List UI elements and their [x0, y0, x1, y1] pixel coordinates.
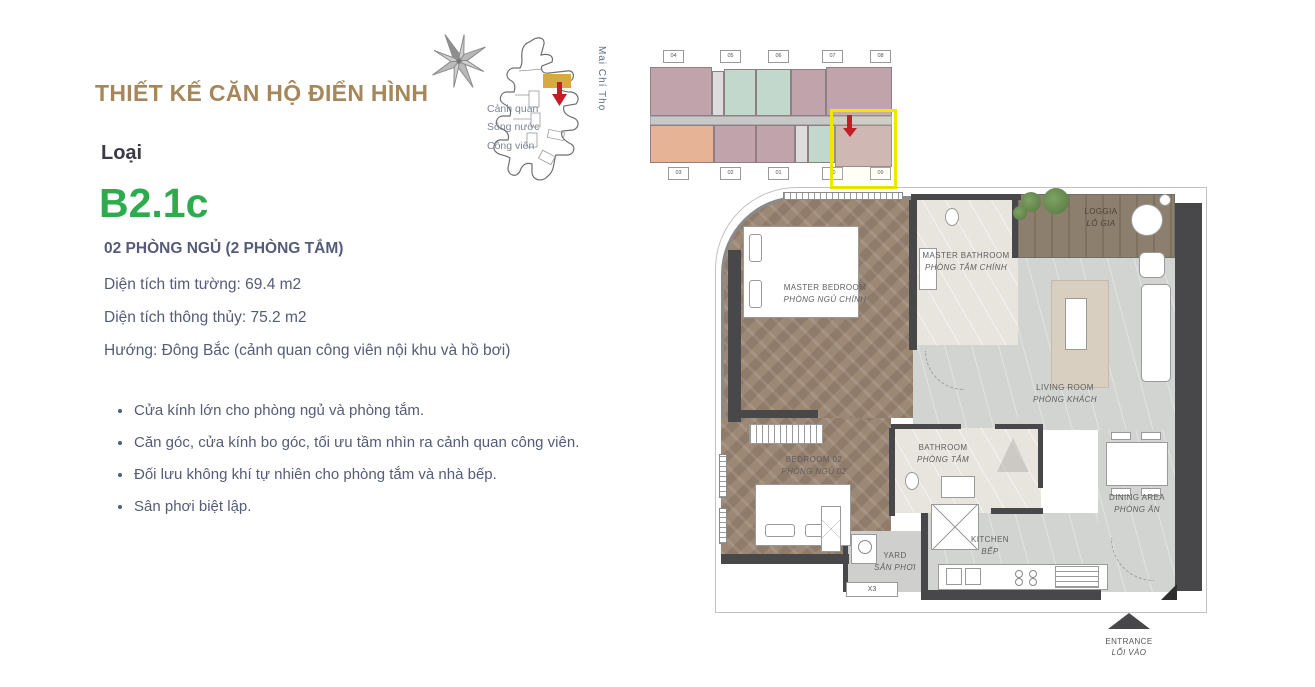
pillow	[765, 524, 795, 537]
bullet-dot	[118, 409, 122, 413]
unit-tag: 03	[668, 167, 689, 180]
stove	[1013, 568, 1043, 586]
selected-unit-arrow	[847, 115, 852, 128]
spec-gross-area: Diện tích tim tường: 69.4 m2	[104, 276, 301, 294]
window	[719, 508, 727, 544]
keyplan-unit	[756, 69, 791, 116]
bullet-dot	[118, 505, 122, 509]
window	[719, 454, 727, 498]
bullet-dot	[118, 441, 122, 445]
sink	[946, 568, 962, 585]
page-title: THIẾT KẾ CĂN HỘ ĐIỂN HÌNH	[95, 80, 428, 107]
plant-icon	[1043, 188, 1069, 214]
dining-table	[1106, 442, 1168, 486]
entrance-arrow	[1108, 613, 1150, 629]
egg-chair	[1131, 204, 1163, 236]
pillow	[749, 234, 762, 262]
sink	[965, 568, 981, 585]
keyplan-unit	[650, 125, 714, 163]
unit-code: B2.1c	[99, 180, 208, 227]
keyplan-unit	[650, 67, 712, 116]
feature-item: Căn góc, cửa kính bo góc, tối ưu tầm nhì…	[118, 434, 598, 451]
pillow	[749, 280, 762, 308]
feature-item: Cửa kính lớn cho phòng ngủ và phòng tắm.	[118, 402, 598, 419]
yard-tag: X3	[846, 582, 898, 597]
keyplan-core	[712, 71, 724, 116]
apartment-floor-plan: MASTER BEDROOM PHÒNG NGỦ CHÍNH MASTER BA…	[713, 186, 1213, 628]
unit-tag: 04	[663, 50, 684, 63]
unit-tag: 02	[720, 167, 741, 180]
feature-list: Cửa kính lớn cho phòng ngủ và phòng tắm.…	[118, 402, 598, 530]
floor-plate-keyplan: 04 05 06 07 08 03 02 01 10 09	[645, 45, 897, 187]
keyplan-unit	[791, 69, 826, 116]
street-label: Mai Chí Thọ	[596, 46, 607, 111]
vanity	[941, 476, 975, 498]
entrance-label: ENTRANCE LỐI VÀO	[1093, 636, 1165, 658]
plant-icon	[1013, 206, 1027, 220]
room-label-dining: DINING AREA PHÒNG ĂN	[1109, 492, 1165, 516]
spec-heading: 02 PHÒNG NGỦ (2 PHÒNG TẮM)	[104, 240, 343, 258]
room-label-loggia: LOGGIA LÔ GIA	[1084, 206, 1117, 230]
unit-tag: 05	[720, 50, 741, 63]
room-label-bathroom: BATHROOM PHÒNG TẮM	[917, 442, 969, 466]
side-table	[1139, 252, 1165, 278]
room-label-living: LIVING ROOM PHÒNG KHÁCH	[1033, 382, 1097, 406]
spec-orientation: Hướng: Đông Bắc (cảnh quan công viên nội…	[104, 342, 510, 360]
sofa	[1141, 284, 1171, 382]
ledge-xbox	[821, 506, 841, 552]
window	[783, 192, 903, 200]
chair	[1141, 432, 1161, 440]
unit-tag: 07	[822, 50, 843, 63]
room-label-master-bathroom: MASTER BATHROOM PHÒNG TẮM CHÍNH	[922, 250, 1009, 274]
exterior-wall-right	[1175, 203, 1202, 591]
side-pouf	[1159, 194, 1171, 206]
room-label-bedroom-02: BEDROOM 02 PHÒNG NGỦ 02	[781, 454, 846, 478]
fridge	[1055, 566, 1099, 588]
room-label-yard: YARD SÂN PHƠI	[874, 550, 916, 574]
bullet-dot	[118, 473, 122, 477]
spec-net-area: Diện tích thông thủy: 75.2 m2	[104, 309, 306, 327]
toilet	[945, 208, 959, 226]
toilet	[905, 472, 919, 490]
feature-item: Đối lưu không khí tự nhiên cho phòng tắm…	[118, 466, 598, 483]
keyplan-core	[795, 125, 808, 163]
feature-item: Sân phơi biệt lập.	[118, 498, 598, 515]
chair	[1111, 432, 1131, 440]
keyplan-unit	[756, 125, 795, 163]
compass-rose-icon	[424, 30, 494, 92]
room-label-master-bedroom: MASTER BEDROOM PHÒNG NGỦ CHÍNH	[784, 282, 867, 306]
exterior-wall-bottom	[925, 590, 1101, 600]
shower	[997, 438, 1029, 472]
unit-tag: 01	[768, 167, 789, 180]
keyplan-unit	[724, 69, 756, 116]
landscape-label: Cảnh quan Sông nước Công viên	[487, 100, 539, 155]
room-label-kitchen: KITCHEN BẾP	[971, 534, 1009, 558]
unit-tag: 08	[870, 50, 891, 63]
unit-tag: 06	[768, 50, 789, 63]
keyplan-unit	[714, 125, 756, 163]
coffee-table	[1065, 298, 1087, 350]
brochure-page: THIẾT KẾ CĂN HỘ ĐIỂN HÌNH Loại B2.1c 02 …	[0, 0, 1315, 687]
selected-unit-highlight	[830, 109, 897, 189]
unit-type-label: Loại	[101, 142, 142, 165]
wardrobe	[749, 424, 823, 444]
